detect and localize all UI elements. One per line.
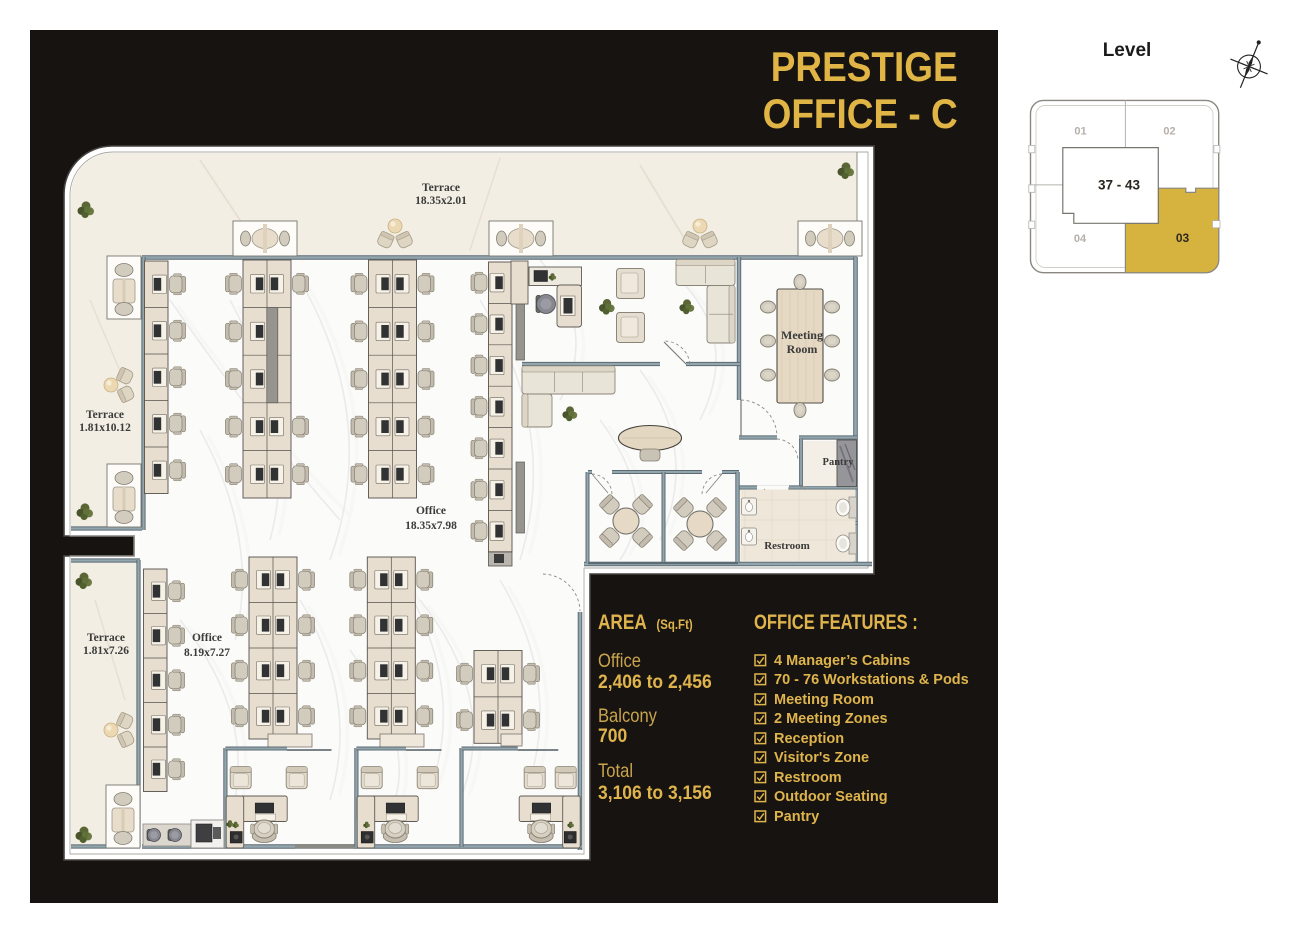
svg-text:18.35x7.98: 18.35x7.98: [405, 520, 457, 532]
svg-text:04: 04: [1074, 233, 1087, 245]
svg-text:Restroom: Restroom: [764, 540, 810, 552]
svg-text:Pantry: Pantry: [823, 457, 855, 468]
svg-text:Room: Room: [787, 342, 818, 356]
svg-text:18.35x2.01: 18.35x2.01: [415, 195, 467, 207]
svg-text:Terrace: Terrace: [422, 182, 460, 194]
svg-text:Office: Office: [192, 632, 222, 644]
svg-text:03: 03: [1176, 231, 1190, 245]
svg-text:Terrace: Terrace: [86, 409, 124, 421]
svg-text:1.81x10.12: 1.81x10.12: [79, 422, 131, 434]
svg-text:01: 01: [1074, 126, 1086, 138]
svg-text:Office: Office: [416, 505, 446, 517]
svg-text:8.19x7.27: 8.19x7.27: [184, 647, 230, 659]
svg-text:Terrace: Terrace: [87, 632, 125, 644]
svg-text:1.81x7.26: 1.81x7.26: [83, 645, 129, 657]
svg-text:Meeting: Meeting: [781, 328, 823, 342]
svg-text:02: 02: [1163, 126, 1175, 138]
svg-text:37 - 43: 37 - 43: [1098, 178, 1141, 193]
